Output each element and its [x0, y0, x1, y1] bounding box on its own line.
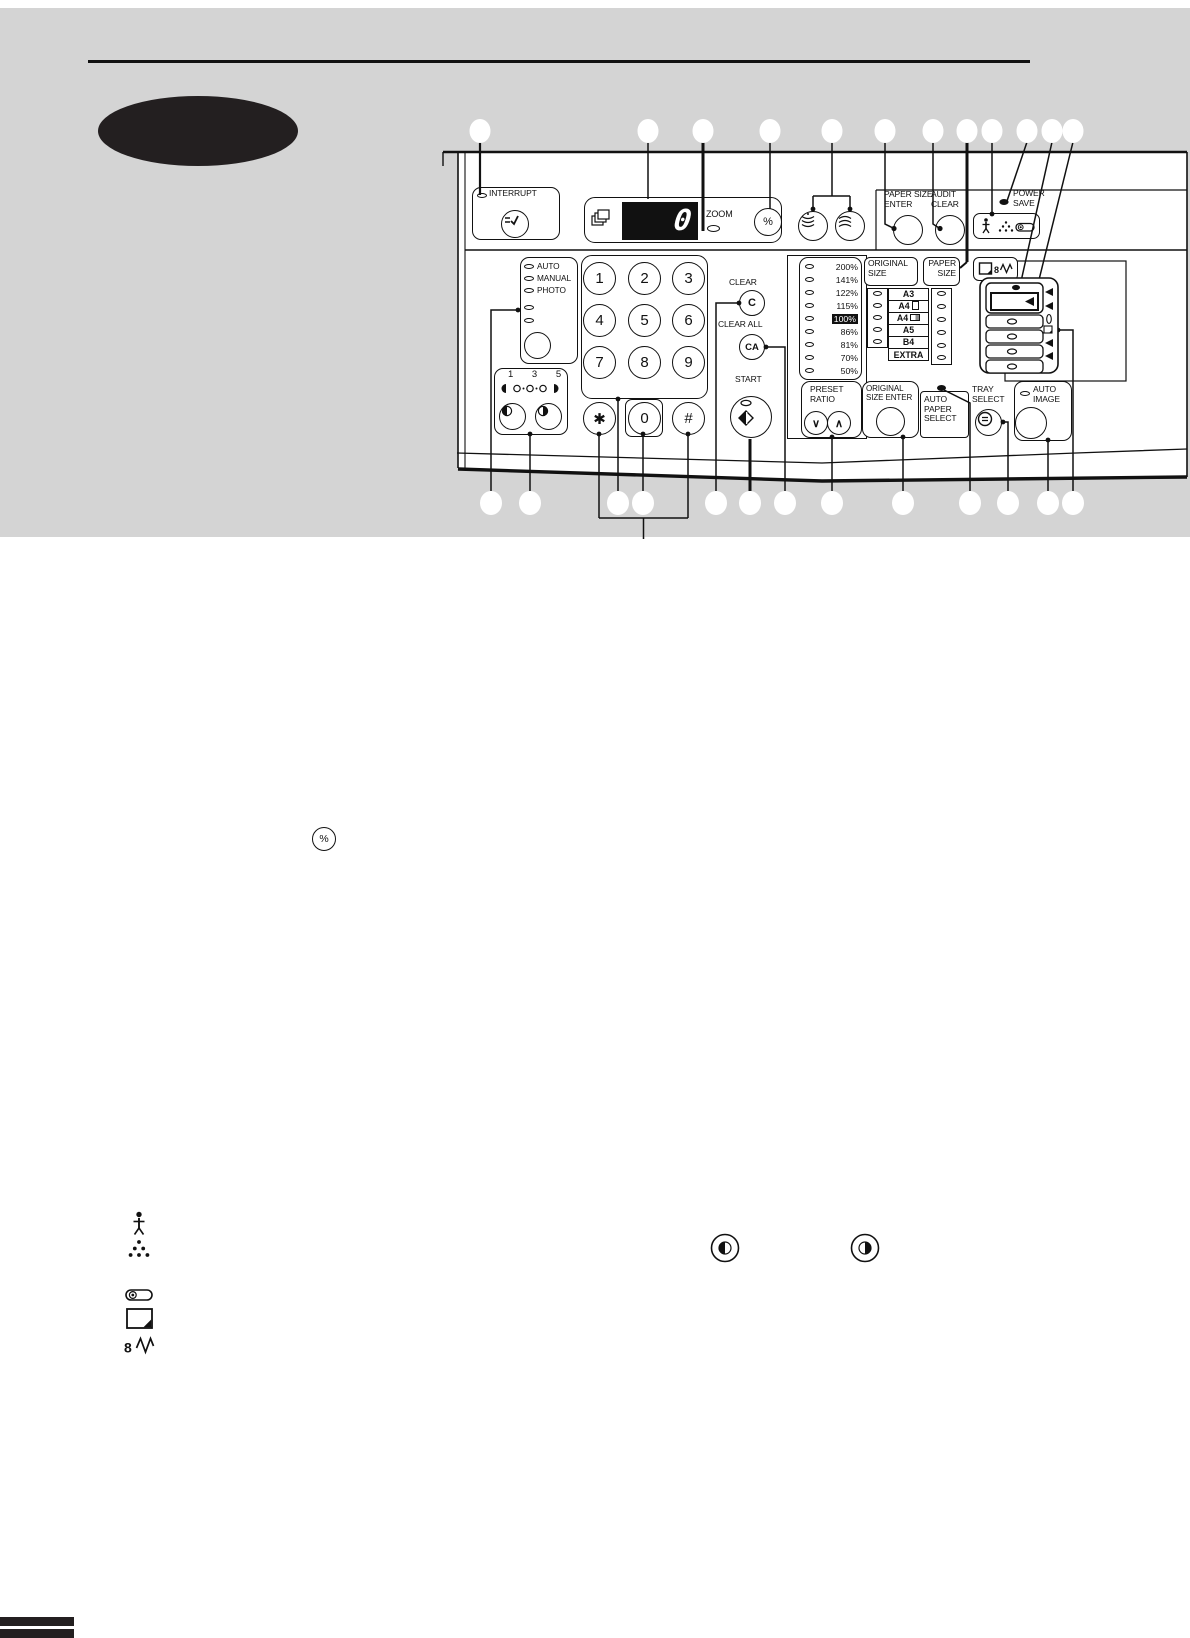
- orig-led-a3: [873, 291, 882, 296]
- paper-size-enter-label: PAPER SIZE ENTER: [884, 190, 932, 209]
- original-size-enter-label: ORIGINAL SIZE ENTER: [866, 384, 912, 402]
- interrupt-button[interactable]: [501, 210, 529, 238]
- tray-select-button[interactable]: [975, 409, 1002, 436]
- size-a4-portrait: A4: [890, 301, 927, 311]
- size-a3: A3: [890, 289, 927, 299]
- exposure-mode-button[interactable]: [524, 332, 551, 359]
- zoom-label: ZOOM: [706, 209, 733, 219]
- orig-led-a4p: [873, 303, 882, 308]
- copy-darker-button[interactable]: [535, 403, 562, 430]
- key-star[interactable]: ✱: [583, 402, 616, 435]
- tray-select-icon: [976, 410, 994, 428]
- top-rule: [88, 60, 1030, 63]
- paper-size-led-column: [931, 288, 952, 365]
- zoom-percent-button[interactable]: %: [754, 208, 782, 236]
- status-indicator-panel: [973, 213, 1040, 239]
- exposure-scale-label: 1 3 5: [508, 370, 569, 381]
- ratio-141: 141%: [812, 275, 858, 285]
- exposure-manual-led: [524, 276, 534, 281]
- original-size-label: ORIGINAL SIZE: [868, 259, 908, 278]
- ratio-81: 81%: [812, 340, 858, 350]
- exposure-photo-label: PHOTO: [537, 286, 566, 295]
- clear-all-label: CLEAR ALL: [718, 320, 762, 330]
- paper-led-4: [937, 330, 946, 335]
- clear-all-button[interactable]: CA: [739, 334, 765, 360]
- start-button[interactable]: [730, 396, 772, 438]
- key-1[interactable]: 1: [583, 262, 616, 295]
- ratio-115: 115%: [812, 301, 858, 311]
- preset-ratio-up-button[interactable]: ∧: [827, 411, 851, 435]
- clear-button[interactable]: C: [739, 290, 765, 316]
- copy-lighter-button[interactable]: [499, 403, 526, 430]
- power-save-label: POWER SAVE: [1013, 189, 1045, 208]
- copy-count-display: 0: [622, 202, 698, 240]
- clear-label: CLEAR: [729, 278, 757, 288]
- exposure-auto-label: AUTO: [537, 262, 560, 271]
- key-2[interactable]: 2: [628, 262, 661, 295]
- auto-image-led: [1020, 391, 1030, 396]
- paper-size-label: PAPER SIZE: [925, 259, 956, 278]
- interrupt-label: INTERRUPT: [489, 189, 537, 199]
- misfeed-indicator-panel: [973, 257, 1018, 281]
- key-9[interactable]: 9: [672, 346, 705, 379]
- footer-bar-1: [0, 1617, 74, 1626]
- exposure-auto-led: [524, 264, 534, 269]
- auto-image-label: AUTO IMAGE: [1033, 385, 1060, 404]
- zoom-led: [707, 225, 720, 232]
- orig-led-a5: [873, 327, 882, 332]
- original-size-enter-button[interactable]: [876, 407, 905, 436]
- paper-led-6: [937, 355, 946, 360]
- key-8[interactable]: 8: [628, 346, 661, 379]
- audit-clear-label: AUDIT CLEAR: [931, 190, 959, 209]
- darker-half-icon: [536, 404, 550, 418]
- section-title-oval: [98, 96, 298, 166]
- paper-led-2: [937, 304, 946, 309]
- auto-paper-select-label: AUTO PAPER SELECT: [924, 395, 956, 424]
- size-a4-landscape: A4: [890, 313, 927, 323]
- orig-led-b4: [873, 339, 882, 344]
- ratio-122: 122%: [812, 288, 858, 298]
- inline-percent-key-icon: %: [312, 827, 336, 851]
- key-5[interactable]: 5: [628, 304, 661, 337]
- start-label: START: [735, 375, 762, 385]
- exposure-extra-led-2: [524, 318, 534, 323]
- preset-ratio-down-button[interactable]: ∨: [804, 411, 828, 435]
- key-7[interactable]: 7: [583, 346, 616, 379]
- audit-clear-button[interactable]: [935, 215, 965, 245]
- copy-count-display-value: 0: [671, 203, 693, 237]
- exposure-photo-led: [524, 288, 534, 293]
- orig-led-a4l: [873, 315, 882, 320]
- key-0[interactable]: 0: [628, 402, 661, 435]
- key-6[interactable]: 6: [672, 304, 705, 337]
- exposure-lighter-icon: [799, 212, 817, 230]
- key-3[interactable]: 3: [672, 262, 705, 295]
- auto-paper-select-led: [937, 385, 946, 391]
- preset-ratio-label: PRESET RATIO: [810, 385, 843, 404]
- size-b4: B4: [890, 337, 927, 347]
- ratio-86: 86%: [812, 327, 858, 337]
- size-a5: A5: [890, 325, 927, 335]
- manual-page: INTERRUPT 0 ZOOM % PAPER SIZE ENTER AUDI…: [0, 0, 1190, 1638]
- paper-led-5: [937, 343, 946, 348]
- exposure-lighter-button[interactable]: [798, 211, 828, 241]
- auto-image-button[interactable]: [1015, 407, 1047, 439]
- machine-outline: [0, 0, 1190, 1638]
- ratio-100-active: 100%: [812, 314, 858, 324]
- ratio-50: 50%: [812, 366, 858, 376]
- footer-bar-2: [0, 1629, 74, 1638]
- interrupt-led: [477, 193, 487, 198]
- key-4[interactable]: 4: [583, 304, 616, 337]
- ratio-200: 200%: [812, 262, 858, 272]
- exposure-darker-button[interactable]: [835, 211, 865, 241]
- exposure-manual-label: MANUAL: [537, 274, 571, 283]
- lighter-half-icon: [500, 404, 514, 418]
- exposure-darker-icon: [836, 212, 854, 230]
- landscape-page-icon: [910, 314, 920, 321]
- start-icon: [731, 397, 761, 431]
- exposure-extra-led-1: [524, 305, 534, 310]
- key-hash[interactable]: #: [672, 402, 705, 435]
- tray-select-label: TRAY SELECT: [972, 385, 1004, 404]
- portrait-page-icon: [912, 301, 919, 310]
- paper-led-1: [937, 291, 946, 296]
- interrupt-icon: [502, 211, 520, 229]
- paper-size-enter-button[interactable]: [893, 215, 923, 245]
- ratio-70: 70%: [812, 353, 858, 363]
- paper-led-3: [937, 317, 946, 322]
- size-extra: EXTRA: [888, 350, 929, 360]
